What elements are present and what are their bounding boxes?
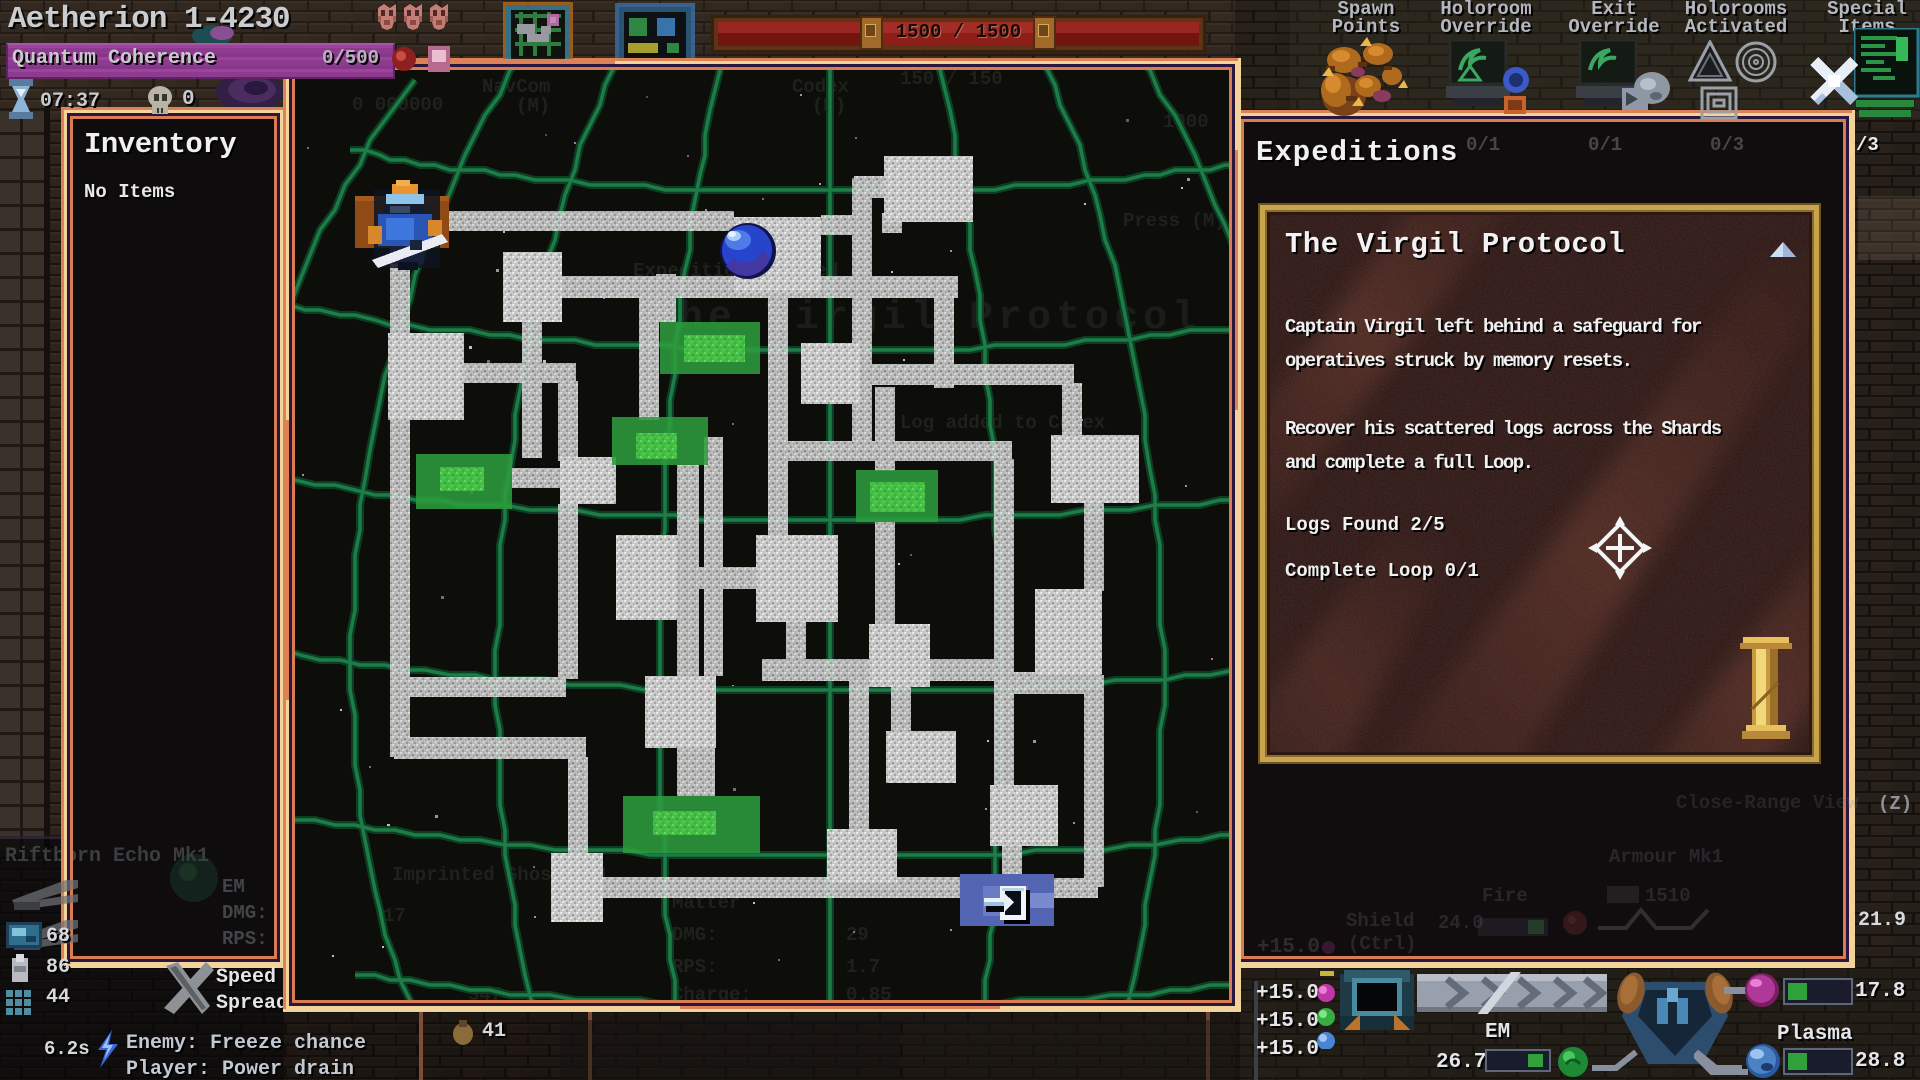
- svg-text:DMG:: DMG:: [672, 924, 718, 946]
- svg-text:29: 29: [846, 924, 869, 946]
- svg-text:1.7: 1.7: [846, 956, 880, 978]
- svg-text:150 / 150: 150 / 150: [900, 68, 1003, 90]
- svg-text:RPS:: RPS:: [672, 956, 718, 978]
- svg-text:(M): (M): [516, 95, 550, 117]
- svg-text:Press (M): Press (M): [1123, 210, 1226, 232]
